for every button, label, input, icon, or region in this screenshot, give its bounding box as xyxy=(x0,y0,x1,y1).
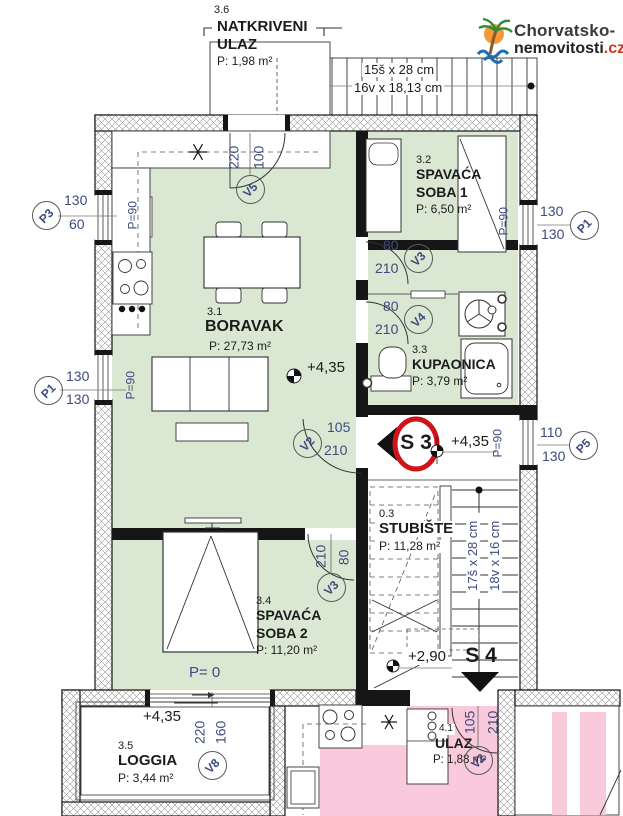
v4-dim-h: 210 xyxy=(375,322,398,337)
soba1-number: 3.2 xyxy=(416,155,431,167)
v3-soba2-dim-h: 210 xyxy=(314,536,329,576)
loggia-area: P: 3,44 m² xyxy=(118,772,173,785)
v2-ulaz-dim-w: 105 xyxy=(463,702,478,742)
bed-soba1 xyxy=(366,139,401,232)
logo-brand-name: nemovitosti xyxy=(514,40,604,57)
v8-dim-w: 160 xyxy=(214,712,229,752)
floor-plan-drawing xyxy=(0,0,623,816)
elevation-marker-stairs xyxy=(387,660,399,672)
stubiste-area: P: 11,28 m² xyxy=(377,540,442,553)
ulaz-number: 4.1 xyxy=(437,724,455,735)
marker-v2-living: V2 xyxy=(293,429,322,458)
logo-brand-line1: Chorvatsko- xyxy=(514,22,615,40)
soba1-name-1: SPAVAĆA xyxy=(416,167,481,182)
canopy-title-1: NATKRIVENI xyxy=(217,19,308,35)
p1-left-dim-bottom: 130 xyxy=(66,392,89,407)
bed-soba2 xyxy=(163,532,258,652)
p5-parapet: P=90 xyxy=(492,423,505,463)
stove-knobs-icon xyxy=(119,306,145,312)
v3-hall-dim-h: 210 xyxy=(375,261,398,276)
v4-dim-w: 80 xyxy=(383,299,399,314)
kupaonica-name: KUPAONICA xyxy=(412,357,496,372)
marker-p5: P5 xyxy=(569,431,598,460)
v2-ulaz-dim-h: 210 xyxy=(486,702,501,742)
p3-dim-bottom: 60 xyxy=(69,217,85,232)
boravak-area: P: 27,73 m² xyxy=(209,340,271,353)
p1-left-dim-top: 130 xyxy=(66,369,89,384)
v3-soba2-dim-w: 80 xyxy=(337,537,352,577)
boravak-name: BORAVAK xyxy=(205,319,284,336)
sign-s4: S 4 xyxy=(462,645,500,667)
stubiste-dim2: 18v x 16 cm xyxy=(488,513,502,599)
soba1-area: P: 6,50 m² xyxy=(416,203,471,216)
soba2-name-1: SPAVAĆA xyxy=(256,608,321,623)
stove-lower-icon xyxy=(319,705,362,748)
marker-v5: V5 xyxy=(236,175,265,204)
sink-lower-icon xyxy=(287,767,319,808)
landing-elevation: +4,35 xyxy=(451,434,489,450)
stairs-elevation: +2,90 xyxy=(406,649,448,665)
p3-dim-top: 130 xyxy=(64,193,87,208)
soba2-floor-note: P= 0 xyxy=(189,665,220,681)
soba2-area: P: 11,20 m² xyxy=(256,644,317,657)
logo-brand-line2: nemovitosti.cz xyxy=(514,41,623,58)
p1-right-parapet: P=90 xyxy=(498,201,511,241)
v2-living-dim-w: 105 xyxy=(327,420,350,435)
stubiste-name: STUBIŠTE xyxy=(377,521,455,537)
window-p1-right xyxy=(520,200,537,250)
window-v8 xyxy=(145,690,275,706)
p1-left-parapet: P=90 xyxy=(125,365,138,405)
stove-icon xyxy=(113,252,152,304)
elevation-marker-boravak xyxy=(287,369,301,383)
canopy-title-2: ULAZ xyxy=(217,37,257,53)
p3-parapet: P=90 xyxy=(127,195,140,235)
window-p1-left xyxy=(95,350,112,405)
boravak-number: 3.1 xyxy=(207,307,222,319)
p1-right-dim-top: 130 xyxy=(540,204,563,219)
kupaonica-number: 3.3 xyxy=(412,345,427,357)
logo-brand-tld: .cz xyxy=(604,40,623,57)
ext-stairs-dim1: 15š x 28 cm xyxy=(362,63,436,77)
marker-p1-right: P1 xyxy=(570,211,599,240)
stubiste-dim1: 17š x 28 cm xyxy=(466,513,480,599)
star-symbol-lower-icon xyxy=(381,715,397,729)
marker-p1-left: P1 xyxy=(34,376,63,405)
marker-v2-ulaz: V2 xyxy=(464,746,493,775)
bedroom-lower-right xyxy=(515,706,621,815)
window-p5 xyxy=(520,415,537,470)
ext-stairs-dim2: 16v x 18,13 cm xyxy=(352,81,444,95)
canopy-number: 3.6 xyxy=(214,5,229,17)
p5-dim-top: 110 xyxy=(540,425,562,440)
marker-p3: P3 xyxy=(32,201,61,230)
soba2-name-2: SOBA 2 xyxy=(256,626,308,641)
stubiste-number: 0.3 xyxy=(377,509,396,521)
v8-dim-h: 220 xyxy=(193,712,208,752)
kupaonica-area: P: 3,79 m² xyxy=(412,375,467,388)
marker-v3-hall: V3 xyxy=(404,244,433,273)
marker-v3-soba2: V3 xyxy=(317,573,346,602)
soba1-name-2: SOBA 1 xyxy=(416,185,468,200)
loggia-elevation-value: +4,35 xyxy=(143,709,181,725)
boravak-elevation: +4,35 xyxy=(307,360,345,376)
loggia-name: LOGGIA xyxy=(118,753,177,769)
p5-dim-bottom: 130 xyxy=(542,449,565,464)
v2-living-dim-h: 210 xyxy=(324,443,347,458)
soba2-number: 3.4 xyxy=(256,596,271,608)
logo-palm-icon xyxy=(478,19,512,63)
canopy-area: P: 1,98 m² xyxy=(217,55,272,68)
marker-v4: V4 xyxy=(404,305,433,334)
v5-dim-h: 220 xyxy=(227,137,242,177)
v5-dim-w: 100 xyxy=(252,137,267,177)
washing-machine-icon xyxy=(459,292,506,336)
v3-hall-dim-w: 80 xyxy=(383,238,399,253)
marker-v8: V8 xyxy=(198,751,227,780)
sign-s3: S 3 xyxy=(398,432,434,454)
floor-plan: Chorvatsko- nemovitosti.cz 3.6 NATKRIVEN… xyxy=(0,0,623,816)
loggia-number: 3.5 xyxy=(118,741,133,753)
p1-right-dim-bottom: 130 xyxy=(541,227,564,242)
s4-arrow-icon xyxy=(461,672,499,692)
